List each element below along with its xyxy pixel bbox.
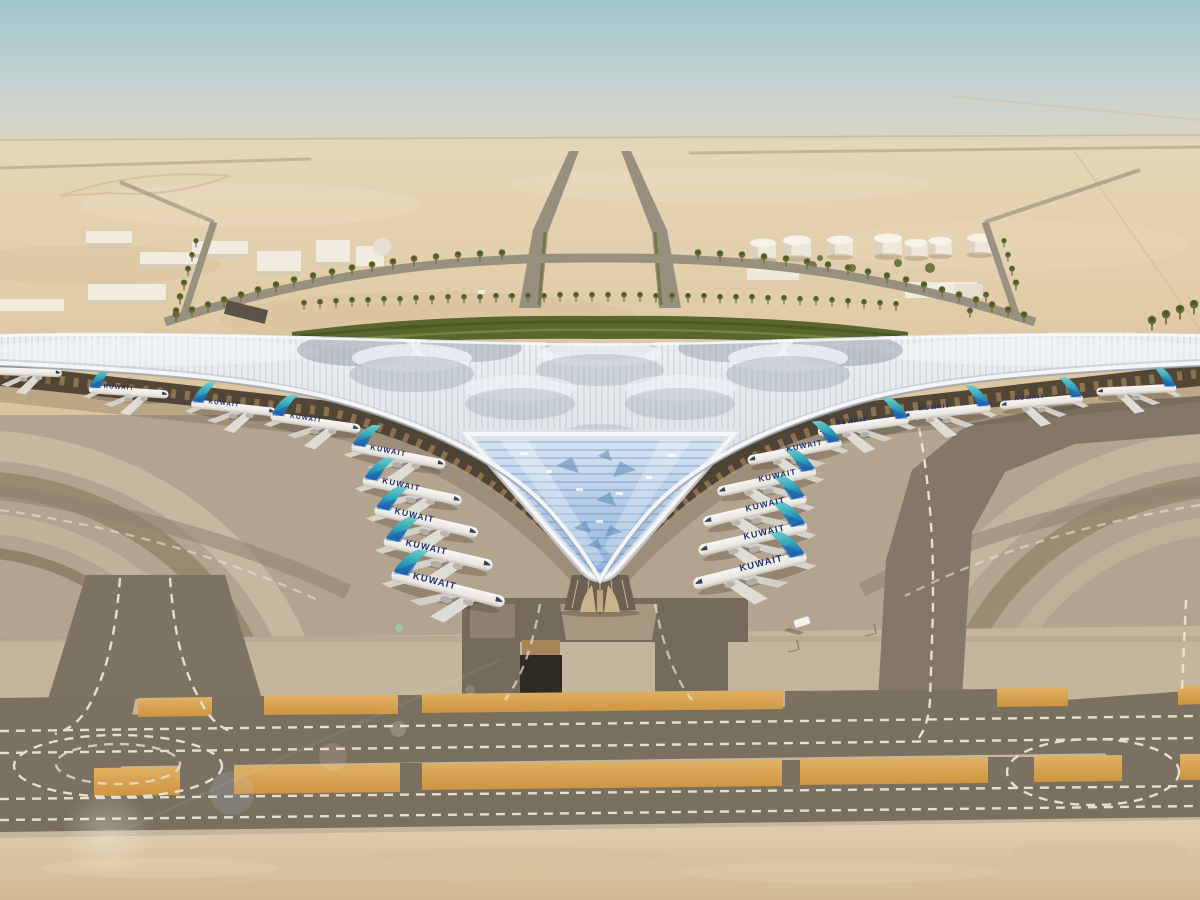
service-pit [520,655,562,697]
car [478,290,485,294]
sky [0,0,1200,152]
airport-rendering: KUWAIT KUWAIT KUWAIT KUWAIT KUWAIT KUWAI… [0,0,1200,900]
scene-canvas: KUWAIT KUWAIT KUWAIT KUWAIT KUWAIT KUWAI… [0,0,1200,900]
